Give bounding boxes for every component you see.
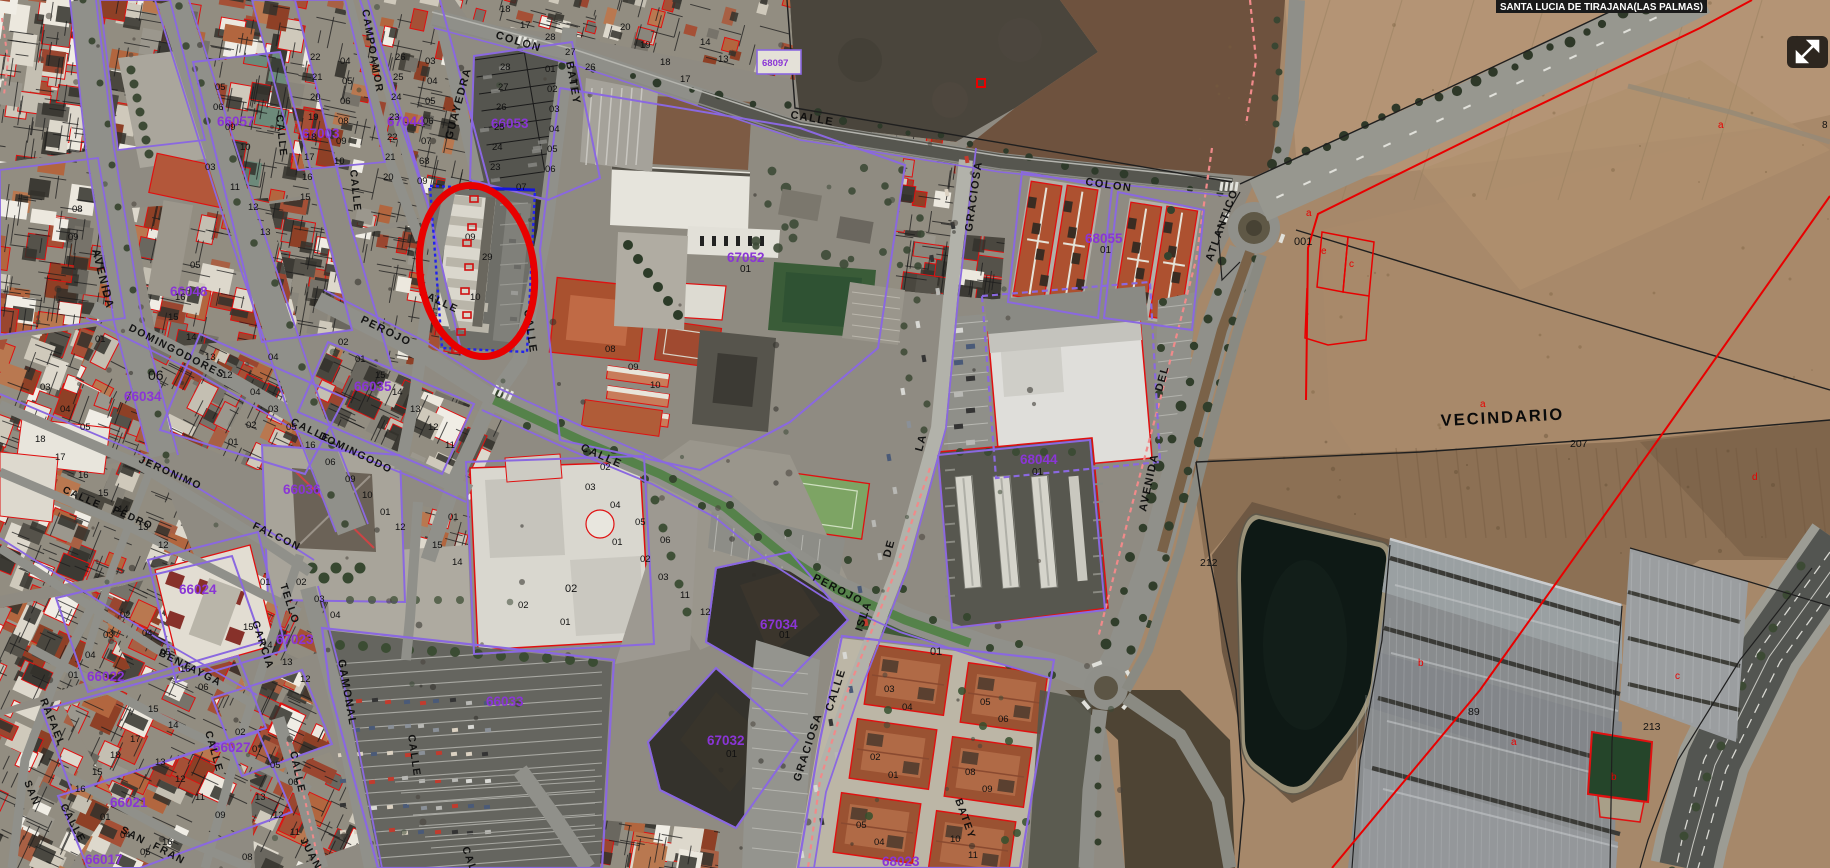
svg-text:03: 03 [884,684,895,695]
svg-text:09: 09 [345,474,356,485]
svg-text:15: 15 [148,704,159,715]
svg-text:02: 02 [235,727,246,738]
svg-text:26: 26 [496,102,507,113]
svg-text:12: 12 [248,202,259,213]
svg-text:15: 15 [432,540,443,551]
svg-text:08: 08 [242,852,253,863]
svg-text:12: 12 [175,774,186,785]
svg-text:04: 04 [340,56,351,67]
svg-text:15: 15 [98,488,109,499]
svg-text:11: 11 [680,590,690,601]
svg-text:17: 17 [520,20,531,31]
svg-text:05: 05 [425,96,436,107]
svg-text:01: 01 [888,770,899,781]
svg-text:11: 11 [230,182,240,193]
svg-text:11: 11 [195,792,205,803]
svg-text:10: 10 [650,380,661,391]
svg-text:8: 8 [1822,120,1828,131]
svg-text:19: 19 [640,40,651,51]
svg-text:04: 04 [60,404,71,415]
svg-text:c: c [1349,259,1354,270]
svg-text:08: 08 [605,344,616,355]
svg-text:03: 03 [585,482,596,493]
svg-text:02: 02 [870,752,881,763]
svg-text:01: 01 [228,437,239,448]
svg-text:09: 09 [628,362,639,373]
svg-text:18: 18 [35,434,46,445]
svg-text:04: 04 [85,650,96,661]
svg-text:207: 207 [1570,438,1588,450]
svg-text:02: 02 [296,577,307,588]
svg-text:26: 26 [585,62,596,73]
svg-text:05: 05 [856,820,867,831]
svg-text:213: 213 [1643,721,1661,733]
svg-text:12: 12 [700,607,711,618]
svg-text:23: 23 [490,162,501,173]
svg-text:04: 04 [142,628,153,639]
svg-text:21: 21 [385,152,396,163]
svg-text:04: 04 [250,387,261,398]
svg-text:01: 01 [560,617,571,628]
svg-text:01: 01 [779,630,791,641]
svg-text:01: 01 [100,812,111,823]
svg-text:09: 09 [982,784,993,795]
svg-text:66036: 66036 [283,482,321,497]
svg-text:01: 01 [95,334,106,345]
svg-text:10: 10 [240,142,251,153]
svg-text:01: 01 [612,537,623,548]
svg-text:d: d [1752,472,1758,483]
svg-text:09: 09 [215,810,226,821]
svg-text:03: 03 [205,162,216,173]
svg-text:25: 25 [494,122,505,133]
svg-text:06: 06 [423,116,434,127]
svg-text:12: 12 [428,422,439,433]
svg-text:02: 02 [565,583,577,595]
svg-text:15: 15 [375,370,386,381]
svg-text:04: 04 [268,352,279,363]
svg-text:06: 06 [198,682,209,693]
svg-text:18: 18 [500,4,511,15]
svg-text:14: 14 [168,720,179,731]
svg-text:a: a [1718,120,1724,131]
svg-text:07: 07 [516,182,527,193]
svg-text:68023: 68023 [882,854,920,868]
svg-text:02: 02 [547,84,558,95]
svg-text:09: 09 [417,176,428,187]
svg-text:18: 18 [110,750,121,761]
svg-text:89: 89 [1468,706,1480,718]
svg-text:18: 18 [660,57,671,68]
svg-text:03: 03 [425,56,436,67]
svg-text:67032: 67032 [707,733,745,748]
svg-text:26: 26 [395,52,406,63]
svg-text:22: 22 [310,52,321,63]
svg-text:06: 06 [545,164,556,175]
svg-text:68097: 68097 [762,58,788,69]
svg-text:16: 16 [78,470,89,481]
svg-text:20: 20 [620,22,631,33]
svg-text:02: 02 [640,554,651,565]
svg-text:001: 001 [1294,236,1312,248]
svg-text:05: 05 [342,76,353,87]
svg-text:01: 01 [740,264,752,275]
svg-text:10: 10 [950,834,961,845]
svg-text:06: 06 [660,535,671,546]
svg-text:13: 13 [282,657,293,668]
svg-text:27: 27 [498,82,509,93]
svg-text:05: 05 [80,422,91,433]
svg-text:66022: 66022 [87,669,125,684]
svg-text:66057: 66057 [217,114,255,129]
svg-text:16: 16 [175,292,186,303]
svg-text:67023: 67023 [276,632,314,647]
svg-text:66017: 66017 [85,852,123,867]
svg-text:02: 02 [120,610,131,621]
svg-text:11: 11 [445,440,455,451]
svg-text:67052: 67052 [727,250,765,265]
svg-text:01: 01 [380,507,391,518]
svg-text:05: 05 [215,82,226,93]
svg-text:68044: 68044 [1020,452,1058,467]
svg-text:05: 05 [635,517,646,528]
svg-text:11: 11 [968,850,978,861]
svg-text:14: 14 [186,332,197,343]
svg-text:16: 16 [305,440,316,451]
svg-text:08: 08 [965,767,976,778]
svg-text:01: 01 [726,749,738,760]
svg-text:27: 27 [565,47,576,58]
svg-text:24: 24 [391,92,402,103]
svg-text:17: 17 [130,734,141,745]
svg-text:a: a [1480,399,1486,410]
svg-text:23: 23 [389,112,400,123]
svg-text:04: 04 [902,702,913,713]
svg-text:06: 06 [340,96,351,107]
svg-text:66034: 66034 [124,389,162,404]
svg-text:04: 04 [427,76,438,87]
svg-text:17: 17 [304,152,315,163]
svg-text:15: 15 [168,312,179,323]
svg-text:66035: 66035 [354,379,392,394]
svg-text:05: 05 [980,697,991,708]
svg-text:20: 20 [383,172,394,183]
svg-text:18: 18 [306,132,317,143]
svg-text:04: 04 [330,610,341,621]
svg-text:29: 29 [482,252,493,263]
svg-text:09: 09 [336,136,347,147]
svg-text:24: 24 [492,142,503,153]
svg-text:12: 12 [300,674,311,685]
svg-text:13: 13 [718,54,729,65]
svg-text:b: b [1611,772,1617,783]
svg-text:03: 03 [40,382,51,393]
svg-text:03: 03 [549,104,560,115]
svg-text:25: 25 [393,72,404,83]
svg-text:28: 28 [545,32,556,43]
svg-text:02: 02 [338,337,349,348]
svg-text:06: 06 [325,457,336,468]
svg-text:08: 08 [72,204,83,215]
svg-text:04: 04 [610,500,621,511]
svg-text:06: 06 [998,714,1009,725]
svg-text:13: 13 [255,792,266,803]
svg-text:01: 01 [545,64,556,75]
svg-text:12: 12 [395,522,406,533]
svg-text:13: 13 [260,227,271,238]
svg-text:09: 09 [225,122,236,133]
svg-text:13: 13 [155,757,166,768]
svg-text:01: 01 [260,577,271,588]
svg-text:68: 68 [419,156,430,167]
svg-text:01: 01 [355,354,366,365]
svg-text:01: 01 [930,646,942,658]
svg-text:15: 15 [300,192,311,203]
svg-text:01: 01 [68,670,79,681]
svg-text:b: b [1418,658,1424,669]
svg-text:01: 01 [1100,245,1112,256]
svg-text:68055: 68055 [1085,231,1123,246]
svg-text:a: a [1306,208,1312,219]
svg-text:01: 01 [1032,467,1044,478]
svg-text:14: 14 [392,387,403,398]
svg-text:02: 02 [518,600,529,611]
svg-text:05: 05 [547,144,558,155]
svg-text:e: e [1321,246,1327,257]
svg-text:21: 21 [312,72,323,83]
svg-text:22: 22 [387,132,398,143]
svg-text:14: 14 [452,557,463,568]
svg-text:05: 05 [270,760,281,771]
svg-text:07: 07 [252,744,263,755]
svg-text:19: 19 [308,112,319,123]
svg-text:12: 12 [273,810,284,821]
svg-text:04: 04 [874,837,885,848]
svg-text:08: 08 [338,116,349,127]
svg-text:66021: 66021 [110,795,148,810]
svg-text:c: c [1675,671,1680,682]
svg-text:28: 28 [500,62,511,73]
svg-text:10: 10 [470,292,481,303]
svg-text:10: 10 [362,490,373,501]
svg-text:01: 01 [448,512,459,523]
svg-text:06: 06 [213,102,224,113]
svg-text:04: 04 [549,124,560,135]
svg-text:09: 09 [68,232,79,243]
svg-text:03: 03 [103,630,114,641]
svg-text:14: 14 [700,37,711,48]
svg-text:20: 20 [310,92,321,103]
svg-text:03: 03 [268,404,279,415]
svg-text:02: 02 [246,420,257,431]
svg-text:12: 12 [158,540,169,551]
svg-text:17: 17 [680,74,691,85]
svg-text:05: 05 [190,260,201,271]
svg-text:17: 17 [55,452,66,463]
svg-text:SANTA LUCIA DE TIRAJANA(LAS PA: SANTA LUCIA DE TIRAJANA(LAS PALMAS) [1500,2,1703,13]
svg-text:212: 212 [1200,557,1218,569]
svg-text:03: 03 [658,572,669,583]
svg-text:15: 15 [92,767,103,778]
svg-text:10: 10 [334,156,345,167]
svg-text:16: 16 [75,784,86,795]
svg-text:66024: 66024 [179,582,217,597]
svg-text:11: 11 [290,827,300,838]
svg-text:16: 16 [302,172,313,183]
svg-text:05: 05 [140,847,151,858]
svg-text:07: 07 [421,136,432,147]
svg-text:a: a [1511,737,1517,748]
svg-text:66033: 66033 [486,694,524,709]
svg-text:06: 06 [148,367,164,383]
svg-text:03: 03 [314,594,325,605]
svg-text:13: 13 [410,404,421,415]
